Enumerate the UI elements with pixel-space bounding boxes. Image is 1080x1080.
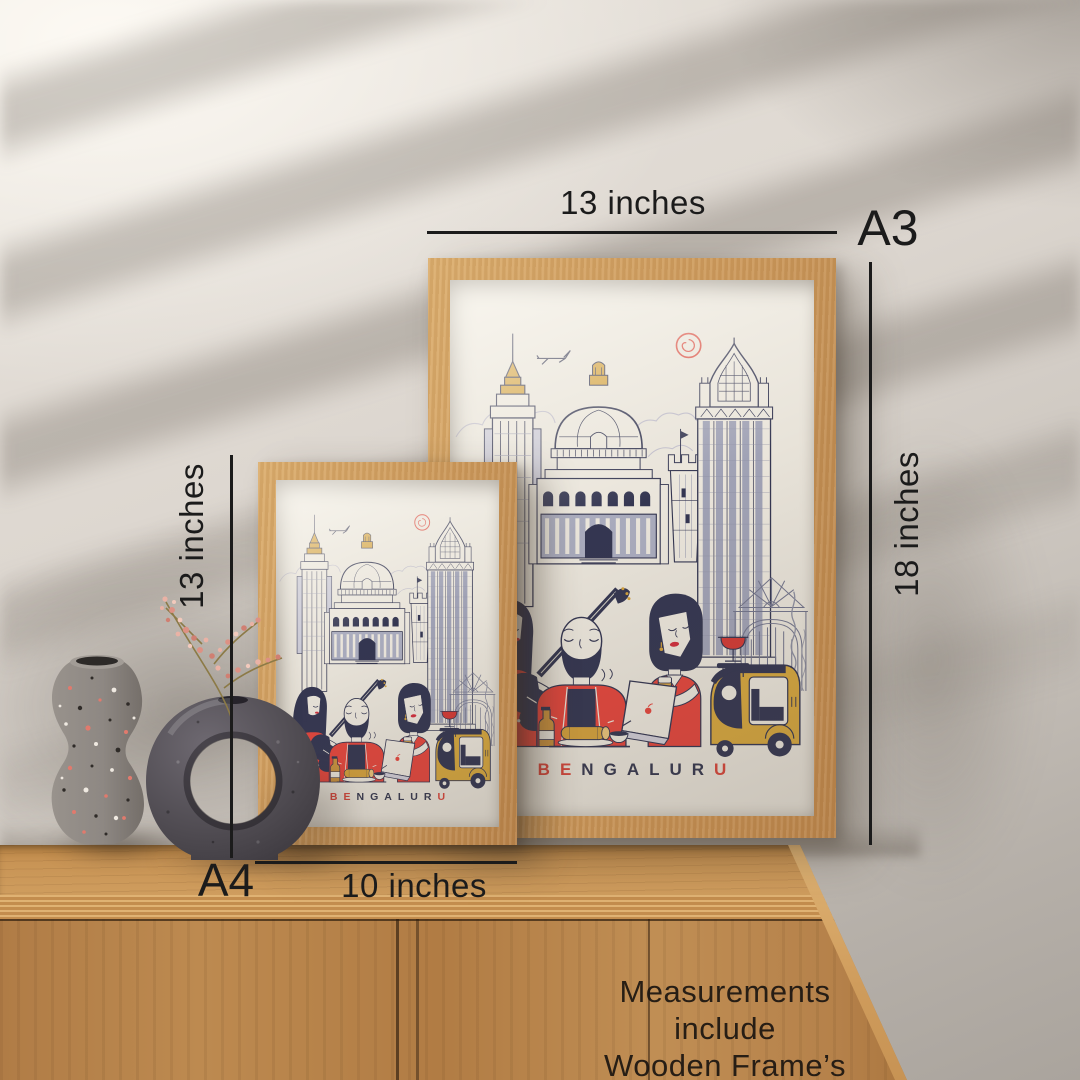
- sideboard-panel-seam: [396, 919, 399, 1080]
- sideboard-panel-seam: [416, 919, 419, 1080]
- dried-flowers: [132, 572, 312, 722]
- poster-title-letter: B: [538, 760, 550, 779]
- a4-width-label: 10 inches: [341, 867, 487, 905]
- measurement-note-line2: Wooden Frame’s width: [565, 1047, 885, 1080]
- poster-title-letter: N: [581, 760, 593, 779]
- poster-title-letter: R: [424, 791, 432, 803]
- poster-title-letter: G: [604, 760, 617, 779]
- poster-title-letter: R: [692, 760, 704, 779]
- a3-height-label: 18 inches: [888, 451, 926, 597]
- poster-title-letter: G: [370, 791, 378, 803]
- poster-title-letter: U: [437, 791, 445, 803]
- poster-title-letter: L: [649, 760, 659, 779]
- a3-height-measure-line: [869, 262, 872, 845]
- a3-width-measure-line: [427, 231, 837, 234]
- poster-title-letter: A: [384, 791, 392, 803]
- poster-title-letter: L: [398, 791, 404, 803]
- poster-title-letter: E: [560, 760, 571, 779]
- a4-height-label: 13 inches: [173, 463, 211, 609]
- a3-width-label: 13 inches: [560, 184, 706, 222]
- a4-width-measure-line: [255, 861, 517, 864]
- measurement-note-line1: Measurements include: [565, 973, 885, 1047]
- measurement-note: Measurements include Wooden Frame’s widt…: [565, 973, 885, 1080]
- poster-title-letter: A: [627, 760, 639, 779]
- a4-size-label: A4: [198, 853, 254, 907]
- wall-shadow-behind-frames: [820, 430, 1040, 890]
- poster-title-letter: U: [669, 760, 681, 779]
- a3-size-label: A3: [857, 199, 918, 257]
- a4-height-measure-line: [230, 455, 233, 858]
- poster-title-letter: U: [410, 791, 418, 803]
- product-photo-scene: Measurements include Wooden Frame’s widt…: [0, 0, 1080, 1080]
- poster-title-letter: U: [714, 760, 726, 779]
